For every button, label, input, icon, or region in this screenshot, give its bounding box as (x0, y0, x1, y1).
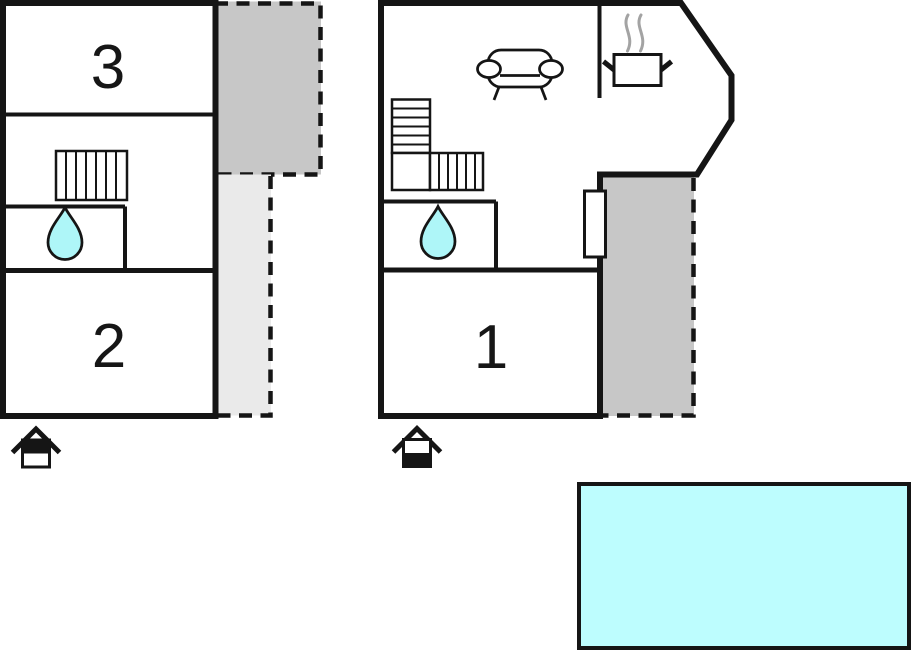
door (585, 191, 606, 257)
stair-landing (392, 153, 430, 190)
entrance-arrow-icon-right (394, 429, 441, 467)
terrace-light-fill (215, 175, 271, 416)
terrace-dark-fill (215, 2, 321, 175)
entrance-box-filled-half (404, 453, 431, 467)
left-terrace-light (215, 175, 271, 416)
floor-plan-svg (0, 0, 913, 652)
left-terrace-dark (215, 2, 321, 175)
terrace-dark-fill (600, 177, 694, 416)
swimming-pool (579, 484, 909, 648)
pot-body (614, 55, 661, 86)
room-label-2: 2 (92, 316, 126, 378)
staircase-icon (56, 151, 127, 200)
entrance-box-filled-half (23, 440, 50, 454)
room-label-1: 1 (474, 317, 508, 379)
right-terrace-dark (600, 177, 694, 416)
entrance-arrow-icon-left (13, 429, 60, 467)
floor-plan: 3 2 1 (0, 0, 913, 652)
room-label-3: 3 (91, 37, 125, 99)
sofa-armrest-right (540, 61, 563, 78)
sofa-armrest-left (478, 61, 501, 78)
